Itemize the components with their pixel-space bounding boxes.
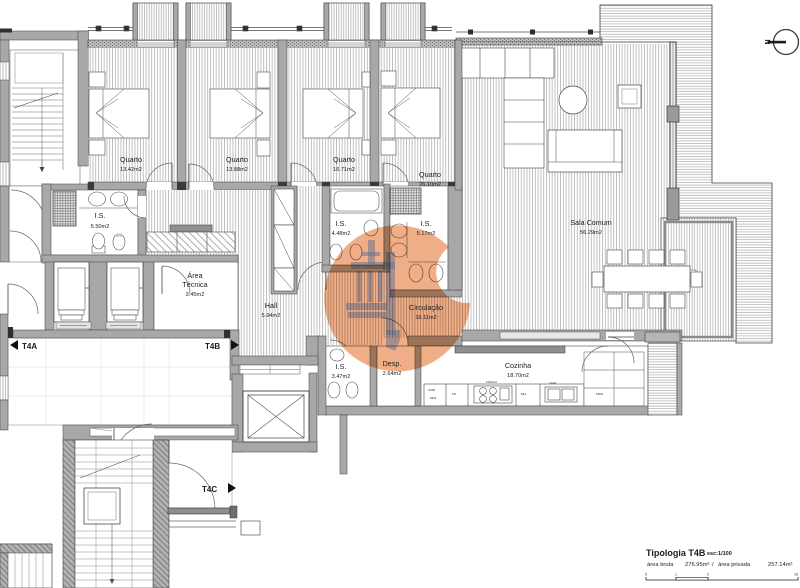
svg-text:5.94m2: 5.94m2 [262,313,281,319]
svg-text:T4C: T4C [202,485,217,494]
svg-text:3.47m2: 3.47m2 [332,374,351,380]
svg-text:257.14m²: 257.14m² [768,562,793,568]
svg-text:13.88m2: 13.88m2 [226,167,248,173]
svg-text:I.S.: I.S. [95,211,106,220]
svg-text:Tipologia T4B: Tipologia T4B [646,548,706,558]
svg-text:Desp.: Desp. [383,359,402,368]
svg-text:MLL: MLL [521,392,527,396]
svg-text:LAVA: LAVA [549,381,556,385]
svg-text:18.70m2: 18.70m2 [507,373,529,379]
svg-text:Técnica: Técnica [182,280,207,289]
svg-text:COM: COM [428,388,436,392]
svg-text:I.S.: I.S. [421,219,432,228]
svg-text:16.71m2: 16.71m2 [333,167,355,173]
svg-text:Sala Comum: Sala Comum [570,218,612,227]
svg-text:Quarto: Quarto [419,170,441,179]
svg-text:56.29m2: 56.29m2 [580,230,602,236]
svg-text:T4B: T4B [205,342,220,351]
svg-text:Quarto: Quarto [333,155,355,164]
svg-text:T4A: T4A [22,342,37,351]
svg-text:Cozinha: Cozinha [505,361,531,370]
svg-text:FRIG: FRIG [596,392,604,396]
svg-text:MLR: MLR [430,396,437,400]
svg-text:área bruta: área bruta [647,562,674,568]
svg-text:esc:1/100: esc:1/100 [707,551,732,557]
svg-text:N: N [765,39,772,44]
svg-text:2: 2 [707,573,709,577]
svg-text:5.50m2: 5.50m2 [91,224,110,230]
svg-text:2.64m2: 2.64m2 [383,371,402,377]
svg-text:1: 1 [675,573,677,577]
svg-text:0: 0 [645,573,647,577]
svg-text:FOGAO: FOGAO [486,380,498,384]
svg-text:13.42m2: 13.42m2 [120,167,142,173]
svg-text:Quarto: Quarto [120,155,142,164]
svg-text:26.10m2: 26.10m2 [419,182,441,188]
svg-text:FN: FN [452,392,456,396]
svg-text:10: 10 [794,573,798,577]
svg-text:3.45m2: 3.45m2 [186,292,205,298]
svg-text:I.S.: I.S. [336,219,347,228]
svg-text:5.17m2: 5.17m2 [417,231,436,237]
svg-text:I.S.: I.S. [336,362,347,371]
svg-text:16.11m2: 16.11m2 [415,315,436,321]
svg-text:Hall: Hall [265,301,278,310]
svg-text:área privada: área privada [718,562,751,568]
svg-text:276.95m²: 276.95m² [685,562,710,568]
svg-text:Circulação: Circulação [409,303,443,312]
svg-text:4.48m2: 4.48m2 [332,231,351,237]
svg-text:Área: Área [187,271,202,280]
svg-text:Quarto: Quarto [226,155,248,164]
